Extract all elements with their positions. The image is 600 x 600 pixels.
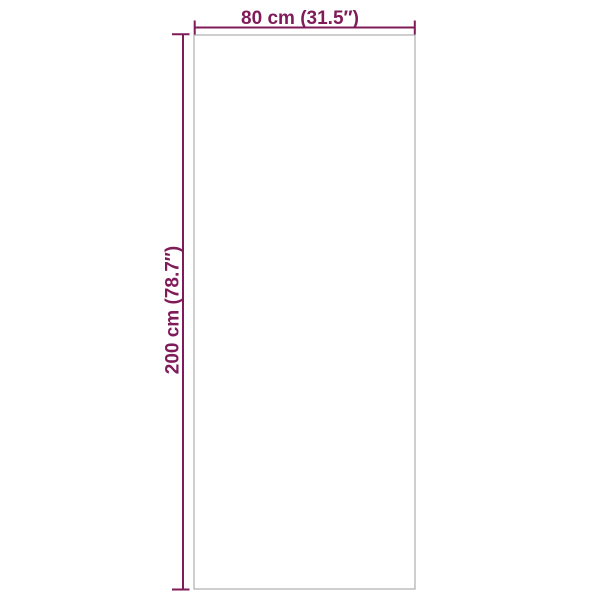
svg-text:80 cm (31.5″): 80 cm (31.5″) bbox=[241, 8, 359, 29]
svg-text:200 cm (78.7″): 200 cm (78.7″) bbox=[162, 246, 183, 374]
